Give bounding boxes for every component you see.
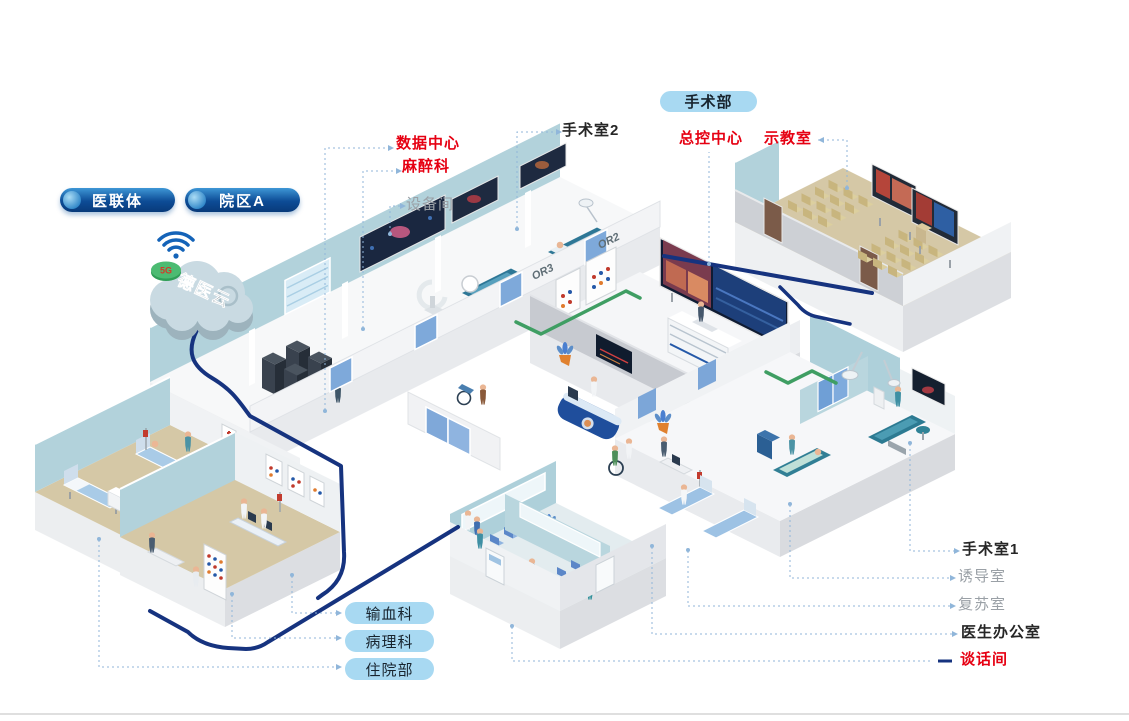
- pill-inpatient: 住院部: [345, 658, 434, 680]
- 5g-badge: 5G: [151, 262, 181, 282]
- wifi-icon: [159, 233, 193, 259]
- label-recovery-room: 复苏室: [958, 597, 1006, 613]
- inpatient-label: 住院部: [365, 659, 413, 680]
- waiting-block: [450, 461, 666, 649]
- svg-text:5G: 5G: [160, 266, 172, 276]
- label-talk-room: 谈话间: [960, 652, 1008, 668]
- blood-transfusion-label: 输血科: [365, 603, 413, 624]
- label-operating-room-1: 手术室1: [962, 542, 1019, 558]
- pill-pathology: 病理科: [345, 630, 434, 652]
- empty-wheelchair: [458, 384, 475, 405]
- surgery-department-label: 手术部: [684, 91, 732, 112]
- label-induction-room: 诱导室: [958, 569, 1006, 585]
- label-anesthesia: 麻醉科: [402, 159, 450, 175]
- pill-blood-transfusion: 输血科: [345, 602, 434, 624]
- cloud-icon: 德医云 5G: [150, 261, 253, 340]
- bottom-divider: [0, 713, 1129, 715]
- label-doctor-office: 医生办公室: [961, 625, 1041, 641]
- label-equipment-room: 设备间: [406, 197, 454, 213]
- label-master-control: 总控中心: [679, 131, 743, 147]
- label-demo-classroom: 示教室: [764, 131, 812, 147]
- label-operating-room-2: 手术室2: [562, 123, 619, 139]
- pill-medical-alliance: 医联体: [60, 188, 175, 212]
- pill-campus-a-label: 院区A: [219, 190, 266, 211]
- pill-medical-alliance-label: 医联体: [92, 190, 143, 211]
- pill-campus-a: 院区A: [185, 188, 300, 212]
- hospital-network-diagram: 德医云 5G OR3 OR2 医联体 院区A 手术部 数据中心 麻醉科 设备间 …: [0, 0, 1129, 721]
- pathology-label: 病理科: [365, 631, 413, 652]
- label-data-center: 数据中心: [396, 136, 460, 152]
- pill-surgery-department: 手术部: [660, 91, 757, 112]
